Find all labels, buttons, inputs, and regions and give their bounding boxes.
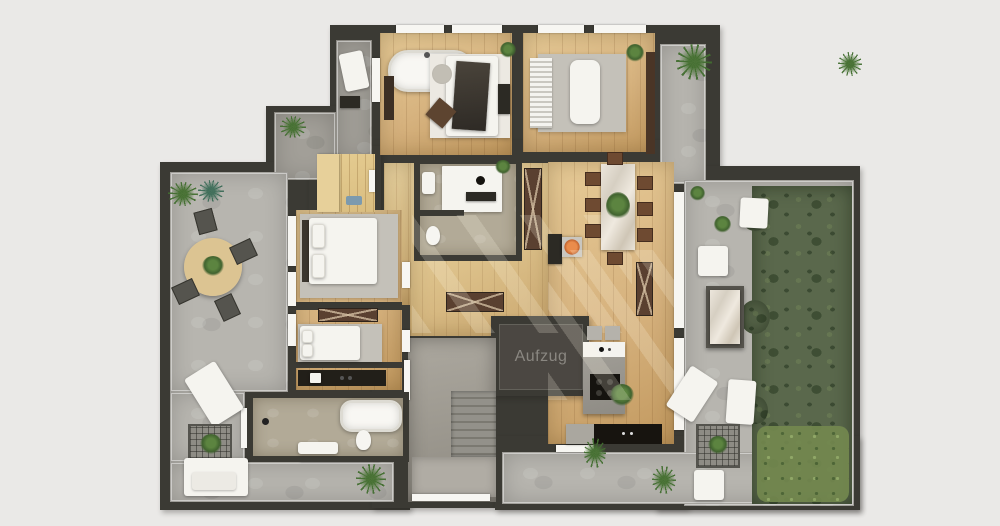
- bathroom-vanity-rug: [442, 166, 502, 212]
- vanity-table: [466, 192, 496, 201]
- fireplace-hearth: [548, 234, 562, 264]
- bedroom2-pillow: [302, 344, 313, 357]
- kitchenette-sink: [310, 373, 321, 383]
- toilet-south: [356, 430, 371, 450]
- elevator-cabin: Aufzug: [499, 324, 583, 390]
- counter-knob: [630, 432, 633, 435]
- table-plant: [202, 256, 224, 276]
- terrace-coffee-table: [340, 96, 360, 108]
- dining-chair: [637, 176, 653, 190]
- elevator-label: Aufzug: [515, 348, 568, 366]
- planter-plant: [708, 436, 728, 454]
- palm-plant-small: [838, 52, 862, 76]
- door-bedroom1: [402, 262, 410, 288]
- terrace-plant: [280, 116, 306, 138]
- fire-bowl: [562, 237, 582, 257]
- kitchen-island-sink-top: [583, 342, 625, 357]
- dining-chair: [607, 252, 623, 265]
- washbasin: [422, 172, 435, 194]
- dining-chair: [637, 202, 653, 216]
- kitchen-cabinet: [587, 326, 602, 340]
- counter-knob: [622, 432, 625, 435]
- garden-edge-blob: [740, 300, 770, 334]
- dining-centerpiece-plant: [606, 192, 630, 220]
- cube-stool: [739, 197, 769, 228]
- lounger-cushion: [192, 472, 236, 490]
- round-pouf: [432, 64, 452, 84]
- window-master-north-2: [452, 25, 502, 33]
- window-lounge-north-2: [594, 25, 646, 33]
- sink-faucet-dot: [608, 348, 611, 351]
- kitchenette-burner: [340, 376, 344, 380]
- bedroom-bench: [498, 84, 510, 114]
- palm-plant: [676, 44, 712, 80]
- staircase-steps: [451, 391, 496, 457]
- window-lounge-north-1: [538, 25, 584, 33]
- lounge-bed-top: [710, 290, 740, 344]
- floorplan-rendering: Aufzug: [0, 0, 1000, 526]
- burner: [596, 379, 602, 385]
- burner: [596, 390, 602, 396]
- bathroom-partition-wall: [420, 210, 464, 216]
- terrace-plant: [198, 180, 224, 202]
- daybed: [570, 60, 600, 124]
- lounge-blinds: [530, 58, 552, 128]
- grass-patch: [757, 426, 849, 502]
- burner: [607, 379, 613, 385]
- kitchen-cabinet: [605, 326, 620, 340]
- window-bedroom1-west-1: [288, 216, 296, 266]
- terrace-plant-small: [690, 186, 705, 201]
- stairwell-glass-door: [412, 494, 490, 501]
- master-wardrobe: [384, 76, 394, 120]
- terrace-bench: [694, 470, 724, 500]
- living-cabinet: [636, 262, 653, 316]
- sauna-bucket: [346, 196, 362, 205]
- sauna-bench: [317, 154, 339, 212]
- lounge-plant: [626, 44, 644, 62]
- kitchenette-burner: [348, 376, 352, 380]
- grass-tuft: [584, 438, 606, 468]
- kitchen-counter-dark: [594, 424, 662, 444]
- window-bedroom1-west-2: [288, 272, 296, 306]
- sink-basin-dot: [599, 347, 604, 352]
- sauna-door: [369, 170, 375, 192]
- dining-chair: [585, 198, 601, 212]
- master-plant: [500, 42, 516, 58]
- grass-tuft: [652, 466, 676, 494]
- window-living-east-1: [674, 192, 684, 328]
- planter-plant: [200, 434, 222, 454]
- bathtub-south: [340, 400, 402, 432]
- toilet: [426, 226, 440, 245]
- hall-sideboard: [446, 292, 504, 312]
- dining-chair: [585, 224, 601, 238]
- kitchen-plant: [610, 384, 634, 406]
- dining-chair: [637, 228, 653, 242]
- cube-stool: [698, 246, 728, 276]
- washbasin-south: [298, 442, 338, 454]
- master-bed-throw: [452, 61, 491, 131]
- window-bedroom2-west: [288, 314, 296, 346]
- bathroom-plant: [495, 160, 511, 174]
- window-master-west: [372, 58, 380, 102]
- window-master-north-1: [396, 25, 444, 33]
- bedroom1-pillow: [312, 224, 325, 248]
- floor-lamp: [262, 418, 269, 425]
- wall-bedroom2-south: [296, 362, 402, 368]
- dining-chair: [607, 152, 623, 165]
- terrace-plant-small: [714, 216, 731, 233]
- staircase-landing: [412, 457, 496, 497]
- hall-wardrobe: [524, 168, 542, 250]
- bedroom2-pillow: [302, 330, 313, 343]
- vanity-stool: [476, 176, 485, 185]
- terrace-plant: [356, 464, 386, 494]
- sun-lounger: [725, 379, 756, 425]
- dining-chair: [585, 172, 601, 186]
- bedroom1-pillow: [312, 254, 325, 278]
- bedroom2-wardrobe: [318, 308, 378, 322]
- lounge-cabinet: [646, 52, 655, 154]
- terrace-plant: [168, 182, 198, 206]
- bedroom1-headboard: [302, 220, 309, 282]
- door-bedroom2: [402, 330, 410, 352]
